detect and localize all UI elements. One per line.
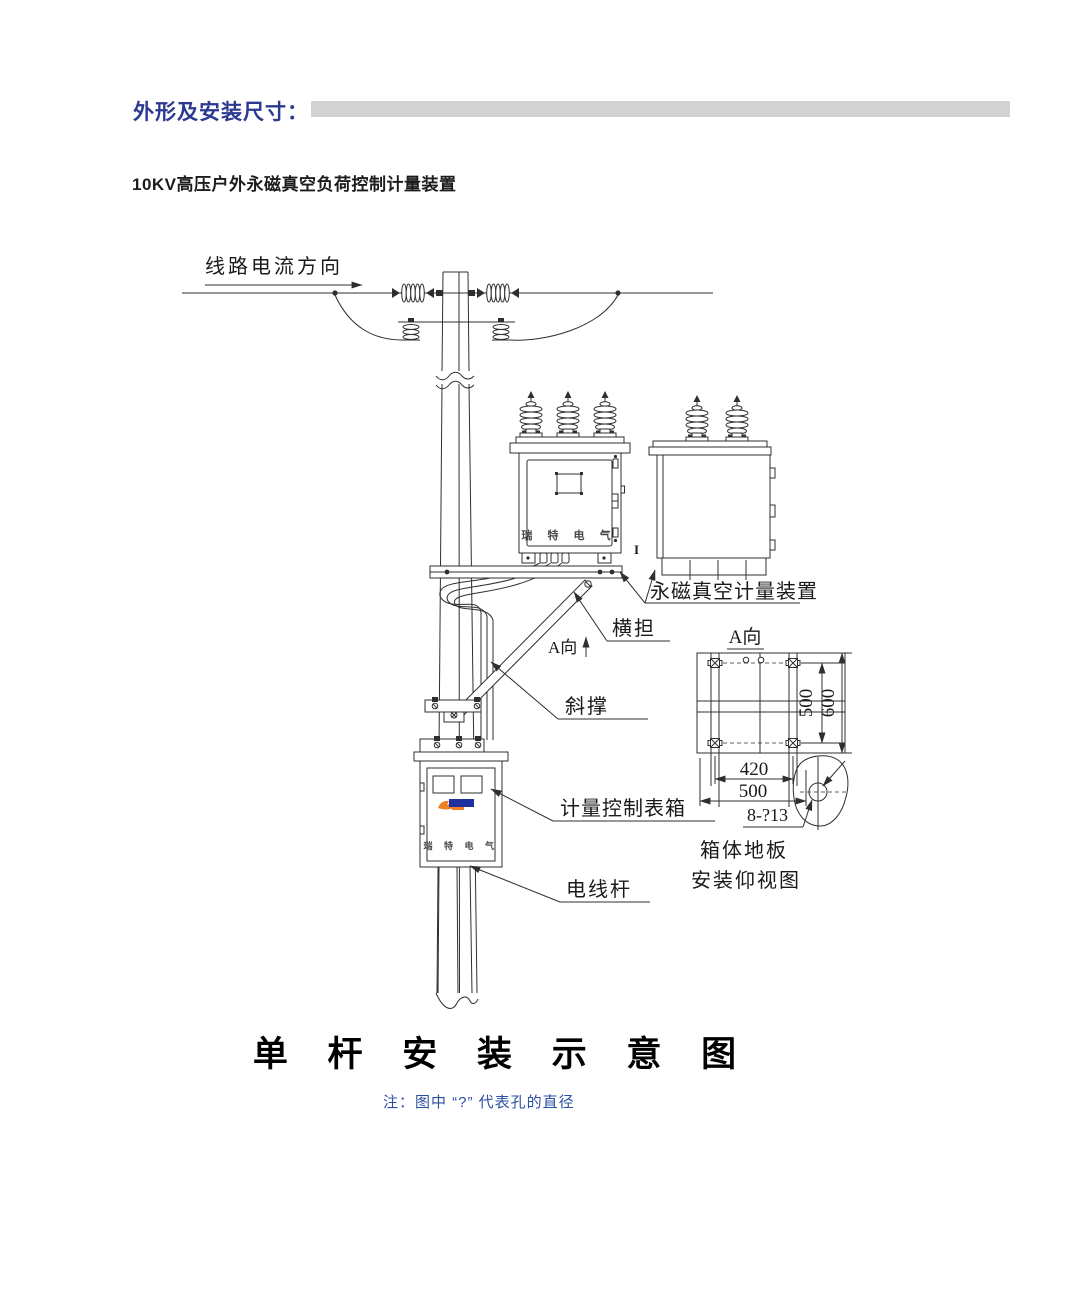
jumper-wire-right	[510, 295, 618, 340]
detail-caption-line1: 箱体地板	[700, 839, 788, 862]
section-header: 外形及安装尺寸：	[133, 96, 309, 126]
page: 外形及安装尺寸： 10KV高压户外永磁真空负荷控制计量装置	[0, 0, 1084, 1307]
detail-view-a: A向 500 600	[691, 626, 852, 892]
dim-420-horizontal: 420	[740, 759, 769, 780]
holes-label: 8-?13	[747, 805, 788, 825]
diagonal-brace-label: 斜撑	[565, 695, 609, 718]
jumper-wire-left	[335, 295, 402, 340]
dim-500-vertical: 500	[796, 689, 817, 718]
brand-label-front-box: 瑞 特 电 气	[521, 528, 616, 542]
device-window	[557, 474, 581, 493]
diagram-main-title: 单 杆 安 装 示 意 图	[0, 1026, 1004, 1077]
header-gray-bar	[311, 101, 1010, 117]
meter-control-box: 瑞 特 电 气	[414, 752, 508, 993]
metering-device-side-view	[649, 395, 775, 580]
hole-detail-balloon	[793, 756, 848, 830]
meter-window-right	[461, 776, 482, 793]
line-current-direction-label: 线路电流方向	[205, 255, 343, 278]
installation-diagram: 线路电流方向	[0, 240, 1084, 1015]
metering-device-label: 永磁真空计量装置	[650, 580, 818, 603]
strain-insulator-left	[392, 284, 434, 302]
product-subtitle: 10KV高压户外永磁真空负荷控制计量装置	[132, 170, 457, 195]
meter-window-left	[433, 776, 454, 793]
post-insulator-right	[492, 318, 510, 340]
detail-view-title: A向	[729, 626, 762, 648]
meter-control-box-label: 计量控制表箱	[560, 797, 686, 820]
post-insulator-left	[402, 318, 420, 340]
detail-caption-line2: 安装仰视图	[691, 869, 801, 892]
pole-bracket-lower	[420, 739, 484, 752]
device-body-side	[657, 455, 770, 558]
view-a-marker-label: A向	[548, 638, 577, 657]
metering-device-front-view: 瑞 特 电 气 I	[510, 391, 639, 563]
strain-insulator-right	[477, 284, 519, 302]
dim-500-horizontal: 500	[739, 781, 768, 802]
dim-600-vertical: 600	[818, 689, 839, 718]
crossarm-label: 横担	[612, 617, 656, 640]
section-mark-label: I	[634, 542, 639, 557]
brand-label-meter-box: 瑞 特 电 气	[423, 840, 498, 851]
footnote: 注：图中 “?” 代表孔的直径	[383, 1091, 575, 1112]
power-line: 线路电流方向	[182, 255, 713, 340]
crossarm-assembly	[420, 566, 622, 752]
utility-pole-label: 电线杆	[566, 878, 632, 901]
